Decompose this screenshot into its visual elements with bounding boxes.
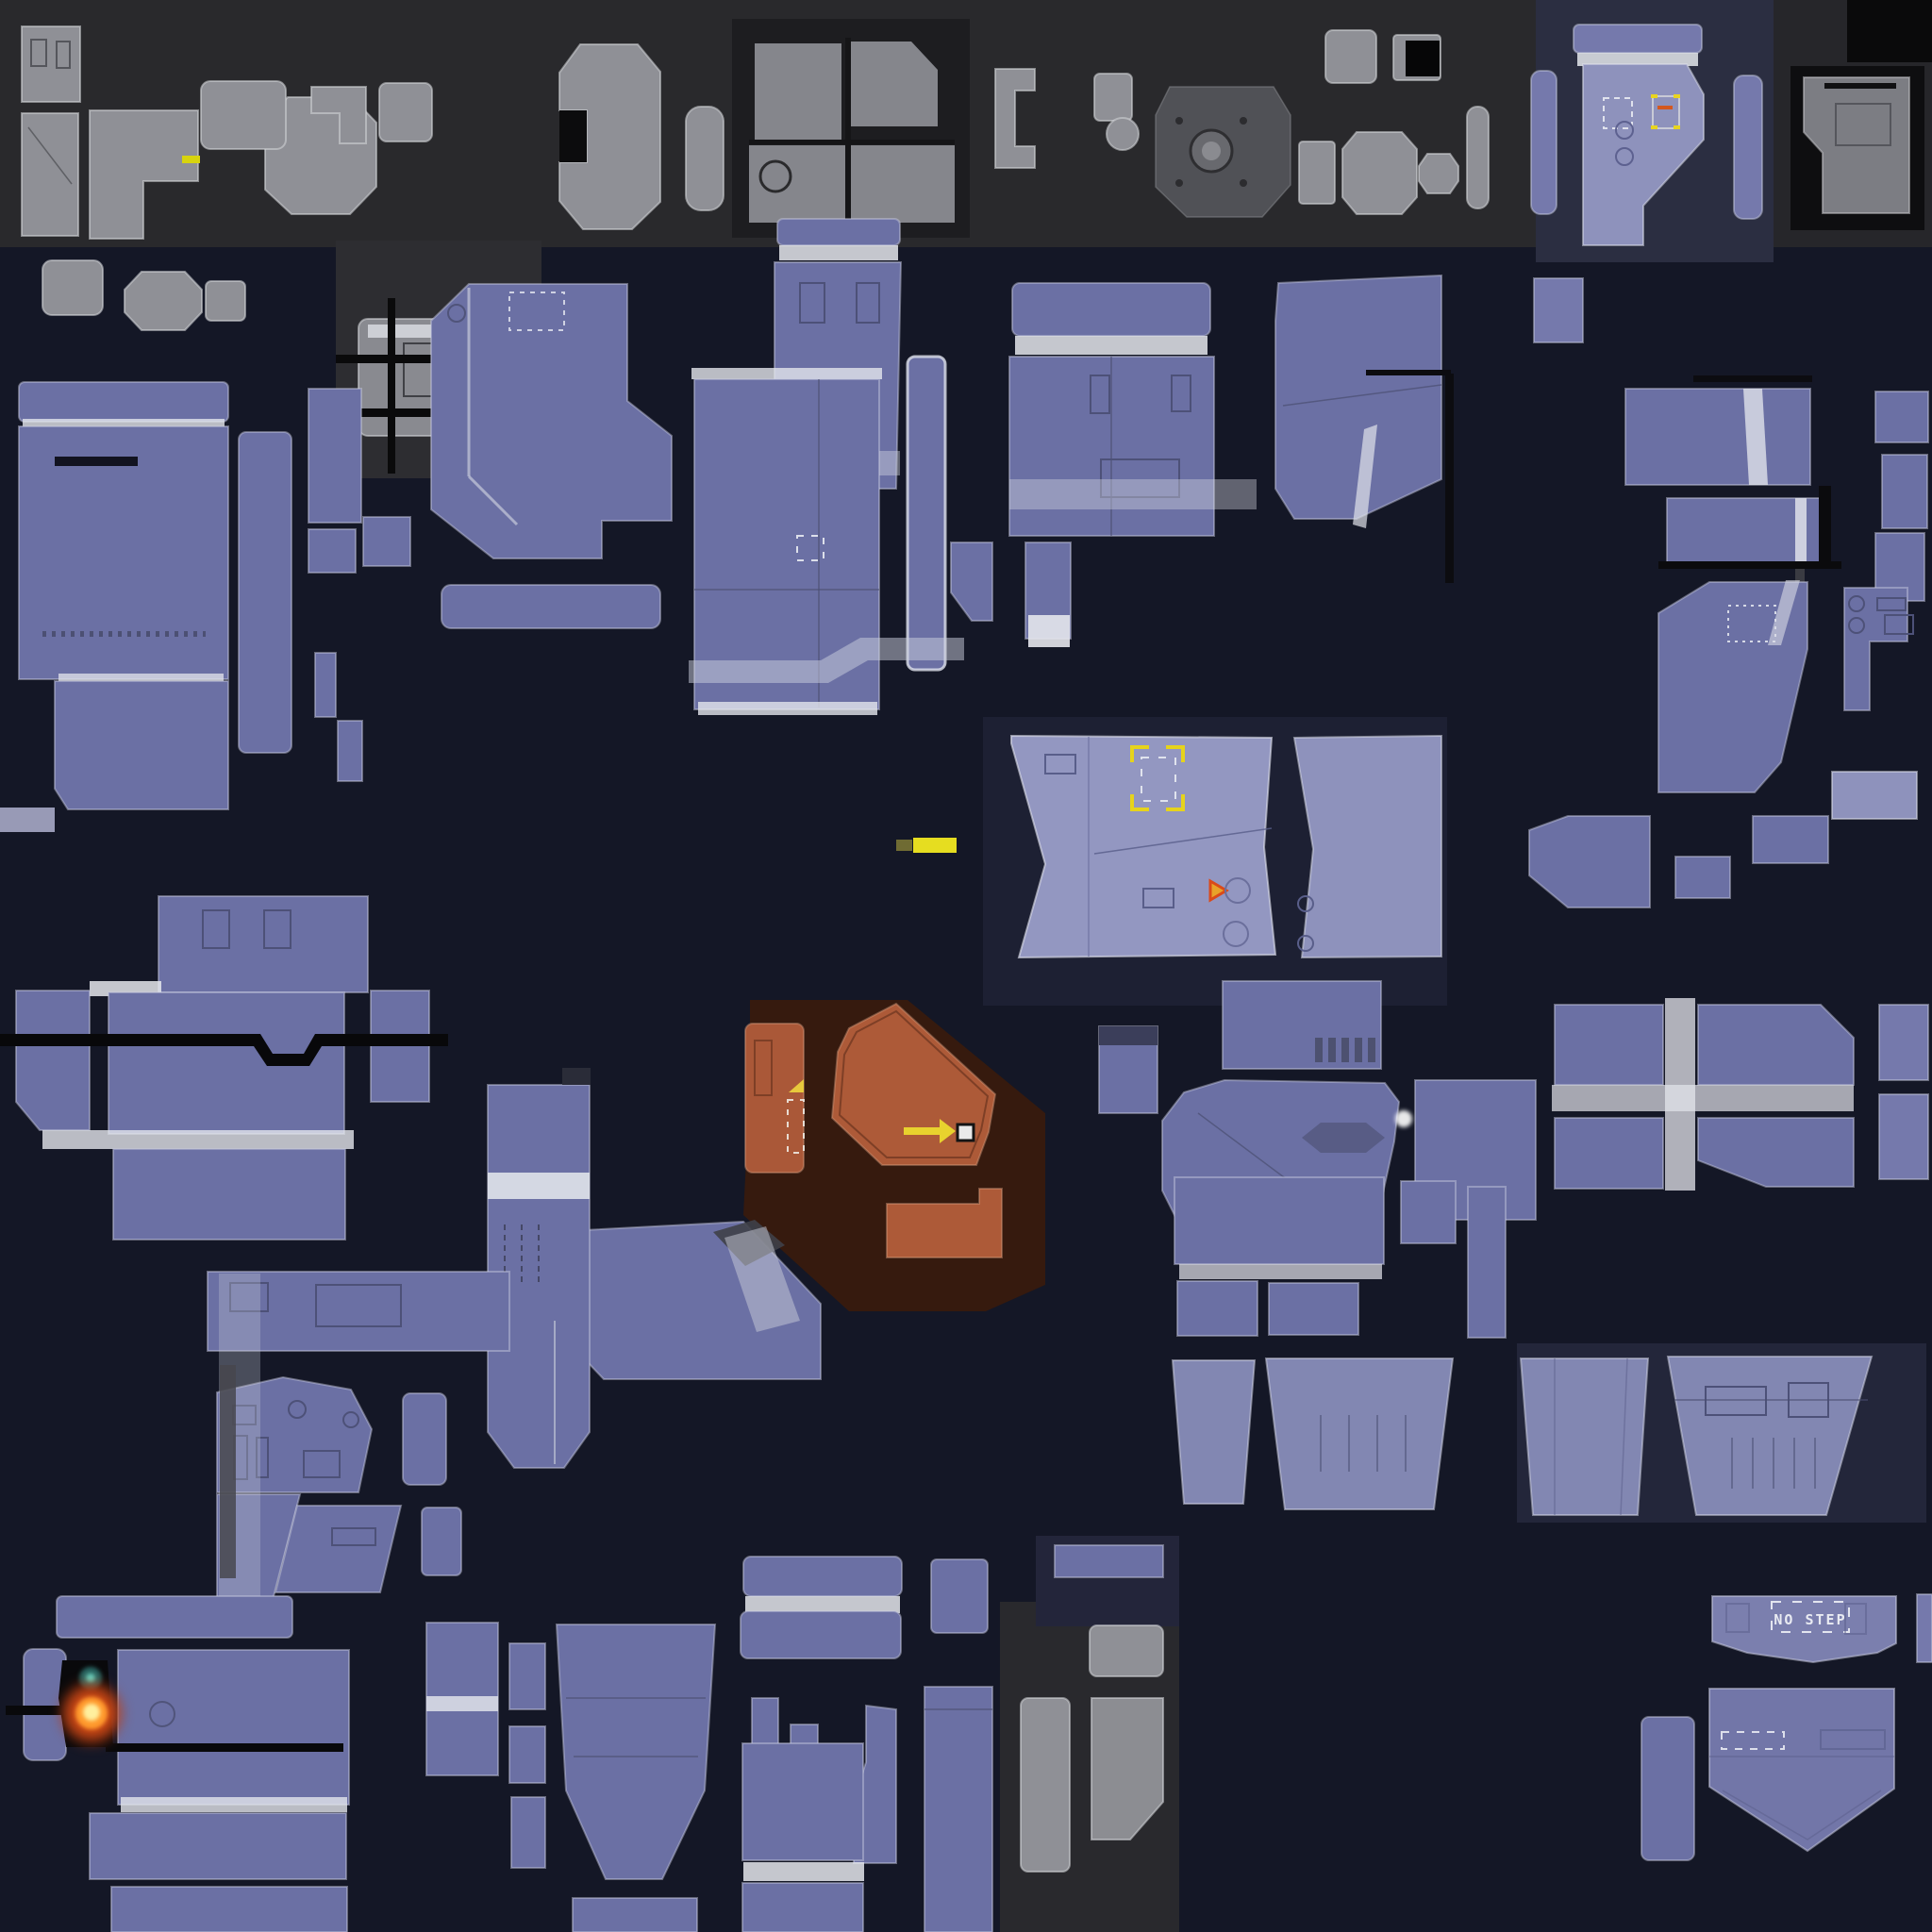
bc-slab — [1055, 1545, 1163, 1577]
bc-bar-1 — [743, 1557, 902, 1596]
rpanel-top-stripe — [1795, 498, 1807, 564]
engine-top-bar — [57, 1596, 292, 1638]
left-edge-sliver — [0, 808, 55, 832]
thruster-glow-core — [83, 1704, 100, 1721]
cluster-panel-1 — [1174, 1177, 1384, 1264]
cluster-panel-2 — [1401, 1181, 1456, 1243]
hub-bolt-2 — [1240, 117, 1247, 125]
panel-e-top-bar — [777, 219, 900, 245]
shield-bar — [1641, 1717, 1694, 1860]
gray-pill — [686, 107, 724, 210]
rpanel-black-h — [1658, 561, 1841, 569]
boot-tick-4 — [1674, 125, 1680, 129]
right-mid-panel — [1625, 389, 1810, 485]
cb-bit-2 — [509, 1726, 545, 1783]
blueprint-panel-c — [749, 145, 955, 223]
gray-square — [201, 81, 286, 149]
vent-bar-3 — [1341, 1038, 1349, 1062]
no-step-label: NO STEP — [1774, 1611, 1846, 1628]
black-line-g-v — [1445, 374, 1454, 583]
right-small-2 — [1882, 455, 1927, 528]
boot-orange-glyph — [1657, 106, 1673, 109]
yellow-bar — [913, 838, 957, 853]
boot-top-bar — [1574, 25, 1702, 53]
gray-small-top — [1090, 1625, 1163, 1676]
cross-bottom-block — [113, 1149, 345, 1240]
vertical-gray-sliver — [220, 1365, 236, 1578]
hub-bolt-3 — [1175, 179, 1183, 187]
right-edge-sliver — [1917, 1594, 1932, 1662]
right-grunge-h — [1552, 1085, 1854, 1111]
small-banded-top — [1099, 1026, 1158, 1045]
gray-small-2 — [1094, 74, 1132, 121]
panel-b-top-bar — [1012, 283, 1210, 336]
right-edge-light — [1832, 772, 1917, 819]
yellow-stripe-marker — [182, 156, 200, 163]
panel-c-grunge-bot — [698, 702, 877, 715]
uv-texture-atlas: NO STEP — [0, 0, 1932, 1932]
bc-block — [742, 1743, 863, 1860]
bc-grunge-2 — [743, 1862, 864, 1881]
bandage-tab — [562, 1068, 591, 1085]
bandage-band — [488, 1173, 590, 1199]
hood-lower-bar — [441, 585, 660, 628]
blueprint-line-v — [845, 38, 851, 223]
atlas-svg: NO STEP — [0, 0, 1932, 1932]
cluster-panel-4 — [1269, 1283, 1358, 1335]
right-edge-small-1 — [1879, 1005, 1928, 1080]
cluster-grunge — [1179, 1264, 1382, 1279]
cb-tall-band — [426, 1696, 498, 1711]
boot-pill-right — [1734, 75, 1762, 219]
engine-right-panel — [118, 1650, 349, 1805]
small-panel-2 — [422, 1507, 461, 1575]
boot-tick-1 — [1651, 94, 1657, 98]
parallelogram-panel — [275, 1506, 401, 1592]
white-square-marker — [958, 1124, 974, 1141]
engine-strut-left — [6, 1706, 62, 1715]
bc-bar-2 — [741, 1611, 901, 1658]
gray-hex — [1419, 154, 1458, 193]
engine-strut-right — [106, 1743, 343, 1752]
bc-square — [931, 1559, 988, 1633]
hood-left-sq-2 — [363, 517, 410, 566]
right-group-c — [1555, 1118, 1663, 1189]
cb-bottom-bar — [573, 1898, 697, 1932]
panel-e-grunge — [779, 245, 898, 260]
hood-left-sq-1 — [308, 529, 356, 573]
row2-small — [206, 281, 245, 321]
boot-tick-3 — [1651, 125, 1657, 129]
hub-bolt-4 — [1240, 179, 1247, 187]
right-mid-blackline — [1693, 375, 1812, 382]
vent-bar-2 — [1328, 1038, 1336, 1062]
engine-slab-1 — [90, 1813, 346, 1879]
cluster-panel-3 — [1177, 1281, 1257, 1336]
bc-column — [924, 1687, 992, 1932]
engine-slab-2 — [111, 1887, 347, 1932]
black-line-g-h — [1366, 370, 1451, 375]
strip-below-b-grunge — [1028, 615, 1070, 647]
trap-a — [1173, 1360, 1255, 1504]
light-panel-right — [1294, 736, 1441, 958]
right-edge-small-2 — [1879, 1094, 1928, 1179]
gray-octagon-2 — [1342, 132, 1417, 214]
left-col-black-bar — [55, 457, 138, 466]
gray-disc — [1107, 118, 1139, 150]
cross-left-wing — [16, 991, 90, 1130]
gray-pill-2 — [1467, 107, 1489, 208]
thin-strip-v — [908, 357, 945, 670]
gray-panel-b — [22, 113, 78, 236]
left-side-strip — [239, 432, 291, 753]
bc-block-2 — [742, 1883, 863, 1932]
black-stripe-left — [0, 1034, 247, 1046]
left-bit-2 — [338, 721, 362, 781]
yellow-bar-dim — [896, 840, 912, 851]
gray-small — [379, 83, 432, 142]
blueprint-panel-a — [755, 43, 841, 142]
trap-b — [1266, 1358, 1453, 1509]
cluster-strip — [1468, 1187, 1506, 1338]
octagon-hole — [559, 110, 587, 162]
right-small-1 — [1875, 391, 1928, 442]
left-bit-1 — [315, 653, 336, 717]
blueprint-line-h — [749, 140, 955, 144]
gunmetal-hub-core — [1202, 142, 1221, 160]
boot-pill-left — [1531, 71, 1557, 214]
boot-tick-2 — [1674, 94, 1680, 98]
square-piece — [1675, 857, 1730, 898]
hood-left-rect — [308, 389, 361, 523]
engine-grunge — [121, 1797, 347, 1812]
hub-bolt-1 — [1175, 117, 1183, 125]
panel-c-grunge-top — [691, 368, 882, 379]
left-col-lower — [55, 681, 228, 809]
cross-grunge-2 — [42, 1130, 354, 1149]
frame-black-line — [1824, 83, 1896, 89]
trap-c — [1521, 1358, 1648, 1515]
gray-hole-black — [1406, 41, 1440, 76]
panel-b-grunge — [1015, 336, 1207, 355]
row2-rounded — [42, 260, 103, 315]
walkway-band-b — [1009, 479, 1257, 509]
boot-small-below — [1534, 278, 1583, 342]
rpanel-black-v — [1819, 486, 1831, 569]
small-panel-1 — [403, 1393, 446, 1485]
vent-bar-4 — [1355, 1038, 1362, 1062]
vent-bar-5 — [1368, 1038, 1375, 1062]
gray-small-3 — [1299, 142, 1335, 204]
right-edge-panel — [1753, 816, 1828, 863]
gray-rounded-sq — [1325, 30, 1376, 83]
gray-bar-1 — [1021, 1698, 1070, 1872]
right-group-b — [1698, 1005, 1854, 1085]
cb-bit-3 — [511, 1797, 545, 1868]
right-group-a — [1555, 1005, 1663, 1085]
strut-black-v1 — [388, 298, 395, 474]
wear-glow-spot — [1395, 1110, 1412, 1127]
cb-bit-1 — [509, 1643, 545, 1709]
row2-octagon — [125, 272, 202, 330]
bg-black-notch — [1847, 0, 1932, 62]
left-col-top-bar — [19, 382, 228, 422]
vent-bar-1 — [1315, 1038, 1323, 1062]
